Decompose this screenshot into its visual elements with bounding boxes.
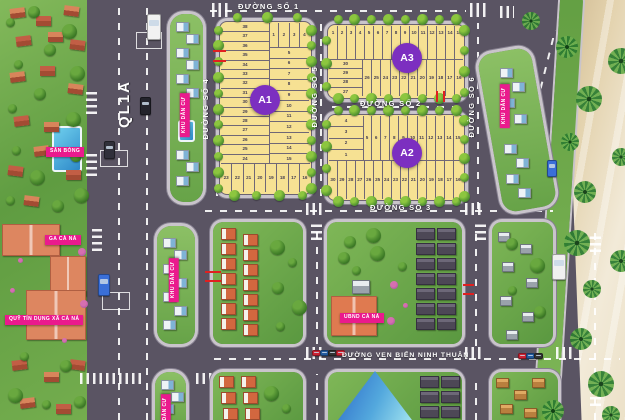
tree-icon	[349, 14, 360, 25]
tree-icon	[28, 6, 40, 18]
dimension-line	[213, 50, 226, 52]
tree-icon	[70, 66, 85, 81]
house-icon	[63, 5, 79, 17]
small-house-icon	[506, 174, 519, 184]
tree-icon	[352, 266, 361, 275]
tree-icon	[459, 191, 470, 202]
tree-icon	[338, 252, 350, 264]
villa-icon	[243, 309, 258, 321]
tree-icon	[451, 105, 462, 116]
house-icon	[23, 195, 39, 207]
tree-icon	[213, 104, 224, 115]
street-label-so1: ĐƯỜNG SỐ 1	[238, 2, 299, 11]
street-label-so3: ĐƯỜNG SỐ 3	[370, 203, 431, 212]
a3-left-lots: 30292827	[329, 59, 362, 96]
small-house-icon	[504, 144, 517, 154]
townhouse-icon	[441, 406, 460, 418]
tree-icon	[322, 82, 331, 91]
tree-icon	[20, 352, 29, 361]
townhouse-icon	[416, 243, 435, 255]
tree-icon	[452, 94, 461, 103]
street-label-so2: ĐƯỜNG SỐ 2	[360, 99, 421, 108]
poi-label-ubnd: UBND CÀ NÁ	[340, 313, 384, 323]
tree-icon	[334, 106, 343, 115]
lot-19: 19	[265, 164, 276, 192]
townhouse-icon	[437, 258, 456, 270]
gray-house-icon	[526, 278, 538, 288]
a2-bottom-lots: 302928272625242322212019181716	[329, 160, 462, 199]
townhouse-icon	[420, 406, 439, 418]
tree-icon	[272, 282, 284, 294]
street-label-so6: ĐƯỜNG SỐ 6	[467, 76, 476, 137]
tree-icon	[349, 105, 360, 116]
small-house-icon	[186, 60, 199, 70]
lot-3: 3	[289, 23, 299, 47]
street-label-so4: ĐƯỜNG SỐ 4	[201, 78, 210, 139]
flower-bush-icon	[10, 288, 15, 293]
lot-4: 4	[329, 116, 363, 126]
tree-icon	[44, 44, 56, 56]
tree-icon	[435, 106, 444, 115]
house-icon	[69, 39, 85, 51]
crosswalk	[86, 88, 97, 114]
gray-house-icon	[506, 330, 518, 340]
townhouse-icon	[416, 288, 435, 300]
lot-26: 26	[363, 60, 371, 96]
small-house-icon	[176, 48, 189, 58]
tree-icon	[307, 41, 316, 50]
lane-line	[477, 23, 479, 209]
lot-25: 25	[371, 60, 380, 96]
street-label-so5: ĐƯỜNG SỐ 5	[310, 66, 319, 127]
palm-icon	[570, 328, 592, 350]
small-house-icon	[186, 162, 199, 172]
townhouse-icon	[437, 318, 456, 330]
palm-icon	[542, 400, 564, 420]
villa-icon	[223, 408, 238, 420]
tree-icon	[233, 13, 242, 22]
lot-27: 27	[221, 125, 269, 134]
tree-icon	[350, 94, 359, 103]
small-house-icon	[518, 188, 531, 198]
tree-icon	[62, 24, 77, 39]
lot-2: 2	[329, 138, 363, 149]
townhouse-icon	[416, 303, 435, 315]
palm-icon	[576, 86, 602, 112]
tree-icon	[214, 57, 223, 66]
tree-icon	[34, 88, 46, 100]
house-icon	[44, 122, 59, 132]
lot-25: 25	[221, 144, 269, 153]
flower-bush-icon	[62, 338, 67, 343]
lot-36: 36	[221, 41, 269, 50]
poi-label-khu-dan-cu-3: KHU DÂN CƯ	[500, 84, 510, 128]
car-icon	[104, 141, 115, 159]
villa-icon	[243, 249, 258, 261]
tree-icon	[383, 14, 394, 25]
tree-icon	[12, 146, 21, 155]
tree-icon	[367, 15, 376, 24]
tree-icon	[14, 60, 23, 69]
lot-6: 6	[269, 58, 309, 69]
house-icon	[36, 16, 51, 26]
tree-icon	[460, 173, 469, 182]
master-plan-map: 383736353433323130292827262524 1234 5678…	[0, 0, 625, 420]
house-icon	[67, 83, 83, 95]
poi-label-khu-dan-cu-1: KHU DÂN CƯ	[180, 93, 190, 137]
tree-icon	[333, 196, 344, 207]
small-house-icon	[186, 34, 199, 44]
tree-icon	[322, 164, 331, 173]
lot-18: 18	[276, 164, 287, 192]
poi-label-ga-ca-na: GA CÀ NÁ	[45, 235, 81, 245]
lot-13: 13	[436, 26, 445, 59]
townhouse-icon	[437, 303, 456, 315]
tree-icon	[42, 400, 51, 409]
tree-icon	[307, 168, 316, 177]
villa-icon	[243, 234, 258, 246]
small-house-icon	[176, 22, 189, 32]
townhouse-icon	[416, 258, 435, 270]
tree-icon	[334, 15, 343, 24]
lot-30: 30	[329, 60, 362, 68]
lot-12: 12	[269, 121, 309, 132]
lane-line	[118, 0, 120, 420]
villa-icon	[243, 279, 258, 291]
house-icon	[13, 115, 29, 127]
tree-icon	[306, 25, 317, 36]
lot-26: 26	[364, 161, 373, 199]
poi-label-khu-dan-cu-4: KHU DÂN CƯ	[161, 394, 171, 420]
tree-icon	[321, 58, 332, 69]
tree-icon	[534, 306, 546, 318]
truck-icon	[147, 14, 161, 40]
townhouse-icon	[416, 318, 435, 330]
lot-3: 3	[329, 126, 363, 137]
crosswalk	[80, 373, 144, 384]
palm-icon	[556, 36, 578, 58]
lot-24: 24	[380, 60, 389, 96]
house-icon	[9, 71, 25, 83]
lot-25: 25	[373, 161, 382, 199]
tree-icon	[8, 388, 23, 403]
lot-12: 12	[426, 116, 435, 160]
flower-bush-icon	[78, 248, 86, 256]
lot-24: 24	[382, 161, 391, 199]
townhouse-icon	[437, 288, 456, 300]
house-icon	[7, 165, 23, 177]
palm-icon	[564, 230, 590, 256]
lot-3: 3	[346, 26, 355, 59]
dimension-line	[205, 271, 221, 273]
lot-12: 12	[427, 26, 436, 59]
gray-house-icon	[500, 296, 512, 306]
villa-icon	[221, 392, 236, 404]
townhouse-icon	[441, 391, 460, 403]
street-label-coastal: ĐƯỜNG VEN BIỂN NINH THUẬN	[342, 352, 469, 359]
lot-5: 5	[364, 26, 373, 59]
palm-icon	[583, 280, 601, 298]
lot-23: 23	[391, 161, 400, 199]
tan-house-icon	[496, 378, 509, 388]
small-house-icon	[163, 238, 176, 248]
crosswalk	[500, 6, 514, 18]
lot-20: 20	[254, 164, 265, 192]
lot-24: 24	[221, 154, 269, 163]
lot-6: 6	[371, 116, 380, 160]
villa-icon	[221, 243, 236, 255]
gray-house-icon	[522, 312, 534, 322]
tree-icon	[459, 153, 470, 164]
flower-bush-icon	[403, 303, 408, 308]
tree-icon	[459, 25, 470, 36]
lot-28: 28	[346, 161, 355, 199]
small-house-icon	[176, 74, 189, 84]
crosswalk	[311, 222, 322, 240]
lot-34: 34	[221, 60, 269, 69]
crosswalk	[196, 373, 214, 384]
lot-14: 14	[445, 26, 454, 59]
dimension-line	[436, 91, 438, 102]
tree-icon	[333, 93, 344, 104]
palm-icon	[602, 406, 620, 420]
gray-house-icon	[502, 262, 514, 272]
house-icon	[15, 35, 31, 47]
dimension-line	[463, 284, 474, 286]
small-house-icon	[163, 320, 176, 330]
dimension-line	[463, 293, 474, 295]
palm-icon	[610, 250, 625, 272]
house-icon	[66, 170, 81, 180]
tree-icon	[434, 196, 445, 207]
car-icon	[98, 274, 110, 296]
poi-label-quy-tin-dung: QUỸ TÍN DỤNG XÃ CÀ NÁ	[5, 315, 83, 325]
tree-icon	[6, 196, 15, 205]
villa-icon	[219, 376, 234, 388]
tree-icon	[293, 13, 302, 22]
tree-icon	[276, 322, 285, 331]
lane-line	[475, 377, 477, 420]
tree-icon	[214, 184, 223, 193]
tree-icon	[435, 15, 444, 24]
small-house-icon	[171, 392, 184, 402]
dimension-line	[205, 280, 221, 282]
flower-bush-icon	[387, 317, 395, 325]
tree-icon	[307, 136, 316, 145]
tree-icon	[530, 258, 545, 273]
palm-icon	[612, 148, 625, 166]
tree-icon	[74, 396, 86, 408]
tree-icon	[270, 240, 285, 255]
small-house-icon	[500, 68, 513, 78]
lot-1: 1	[329, 149, 363, 160]
villa-icon	[245, 408, 260, 420]
tree-icon	[8, 104, 17, 113]
tree-icon	[52, 200, 64, 212]
tree-icon	[401, 15, 410, 24]
tree-icon	[262, 12, 273, 23]
tree-icon	[366, 228, 381, 243]
a1-top-lots: 1234	[269, 23, 309, 47]
lane-line	[316, 228, 318, 344]
lot-17: 17	[444, 161, 453, 199]
palm-icon	[522, 12, 540, 30]
tree-icon	[30, 170, 45, 185]
dimension-line	[213, 60, 226, 62]
tree-icon	[60, 360, 72, 372]
lot-1: 1	[269, 23, 278, 47]
lot-27: 27	[355, 161, 364, 199]
villa-icon	[221, 228, 236, 240]
townhouse-icon	[437, 273, 456, 285]
small-house-icon	[161, 380, 174, 390]
house-icon	[40, 66, 55, 76]
lot-26: 26	[221, 135, 269, 144]
dimension-line	[443, 91, 445, 102]
crosswalk	[92, 229, 102, 251]
small-house-icon	[514, 114, 527, 124]
tree-icon	[370, 246, 385, 261]
tree-icon	[306, 183, 317, 194]
tan-house-icon	[500, 404, 513, 414]
crosswalk	[212, 3, 228, 17]
lot-7: 7	[382, 26, 391, 59]
villa-icon	[243, 264, 258, 276]
crosswalk	[590, 236, 601, 252]
tree-icon	[264, 386, 279, 401]
annex-building-icon	[352, 280, 370, 294]
palm-icon	[574, 181, 596, 203]
block-badge-a3: A3	[392, 43, 422, 73]
crosswalk	[86, 150, 97, 176]
villa-icon	[221, 273, 236, 285]
lot-21: 21	[243, 164, 254, 192]
lot-5: 5	[269, 48, 309, 58]
tree-icon	[6, 18, 15, 27]
tree-icon	[213, 167, 224, 178]
tree-icon	[321, 141, 332, 152]
tree-icon	[417, 14, 428, 25]
small-house-icon	[512, 82, 525, 92]
block-badge-a2: A2	[392, 138, 422, 168]
palm-icon	[588, 371, 614, 397]
tree-icon	[344, 236, 356, 248]
villa-icon	[243, 294, 258, 306]
tree-icon	[213, 72, 224, 83]
tree-icon	[214, 152, 223, 161]
block-badge-a1: A1	[250, 85, 280, 115]
lot-13: 13	[269, 132, 309, 143]
palm-icon	[561, 133, 579, 151]
a2-left-lots: 4321	[329, 116, 364, 160]
tree-icon	[213, 135, 224, 146]
tree-icon	[252, 191, 261, 200]
small-house-icon	[176, 150, 189, 160]
lot-33: 33	[221, 69, 269, 78]
lot-13: 13	[435, 116, 444, 160]
small-house-icon	[174, 306, 187, 316]
tree-icon	[322, 120, 331, 129]
villa-icon	[221, 288, 236, 300]
tree-icon	[288, 258, 297, 267]
townhouse-icon	[437, 243, 456, 255]
lot-19: 19	[426, 161, 435, 199]
small-house-icon	[176, 176, 189, 186]
flower-bush-icon	[18, 258, 23, 263]
villa-icon	[241, 376, 256, 388]
crosswalk	[465, 203, 483, 215]
lot-37: 37	[221, 31, 269, 40]
a1-bottom-lots: 2322212019181716	[221, 163, 310, 192]
crosswalk	[306, 203, 324, 215]
car-icon	[547, 160, 557, 177]
lot-18: 18	[435, 161, 444, 199]
tree-icon	[298, 191, 307, 200]
tree-icon	[229, 190, 240, 201]
lot-35: 35	[221, 50, 269, 59]
lot-17: 17	[288, 164, 299, 192]
lot-29: 29	[337, 161, 346, 199]
house-icon	[44, 372, 59, 382]
villa-icon	[243, 324, 258, 336]
townhouse-icon	[441, 376, 460, 388]
lane-line	[146, 0, 148, 420]
townhouse-icon	[416, 273, 435, 285]
lot-7: 7	[380, 116, 389, 160]
lot-19: 19	[426, 60, 435, 96]
lot-2: 2	[337, 26, 346, 59]
tree-icon	[274, 190, 285, 201]
lot-22: 22	[231, 164, 242, 192]
tree-icon	[451, 14, 462, 25]
tree-icon	[74, 188, 89, 203]
tree-icon	[508, 286, 517, 295]
villa-icon	[243, 392, 258, 404]
tree-icon	[398, 262, 407, 271]
lot-11: 11	[269, 111, 309, 122]
lot-6: 6	[373, 26, 382, 59]
parked-car-icon	[534, 353, 543, 359]
villa-icon	[221, 318, 236, 330]
villa-icon	[221, 303, 236, 315]
townhouse-icon	[420, 376, 439, 388]
tan-house-icon	[524, 408, 537, 418]
townhouse-icon	[420, 391, 439, 403]
lot-14: 14	[444, 116, 453, 160]
lot-20: 20	[417, 161, 426, 199]
tan-house-icon	[532, 378, 545, 388]
house-icon	[48, 32, 63, 42]
crosswalk	[556, 347, 572, 359]
tree-icon	[322, 36, 331, 45]
crosswalk	[470, 3, 486, 17]
lane-line	[316, 374, 318, 420]
tree-icon	[506, 238, 518, 250]
house-icon	[56, 404, 71, 414]
lot-28: 28	[329, 78, 362, 87]
tree-icon	[350, 197, 359, 206]
lot-5: 5	[363, 116, 371, 160]
house-icon	[9, 7, 25, 19]
tree-icon	[214, 89, 223, 98]
lot-17: 17	[445, 60, 454, 96]
small-house-icon	[516, 158, 529, 168]
lot-28: 28	[221, 116, 269, 125]
lot-2: 2	[278, 23, 288, 47]
townhouse-icon	[416, 228, 435, 240]
poi-label-san-bong: SÂN BÓNG	[46, 147, 84, 157]
villa-icon	[221, 258, 236, 270]
